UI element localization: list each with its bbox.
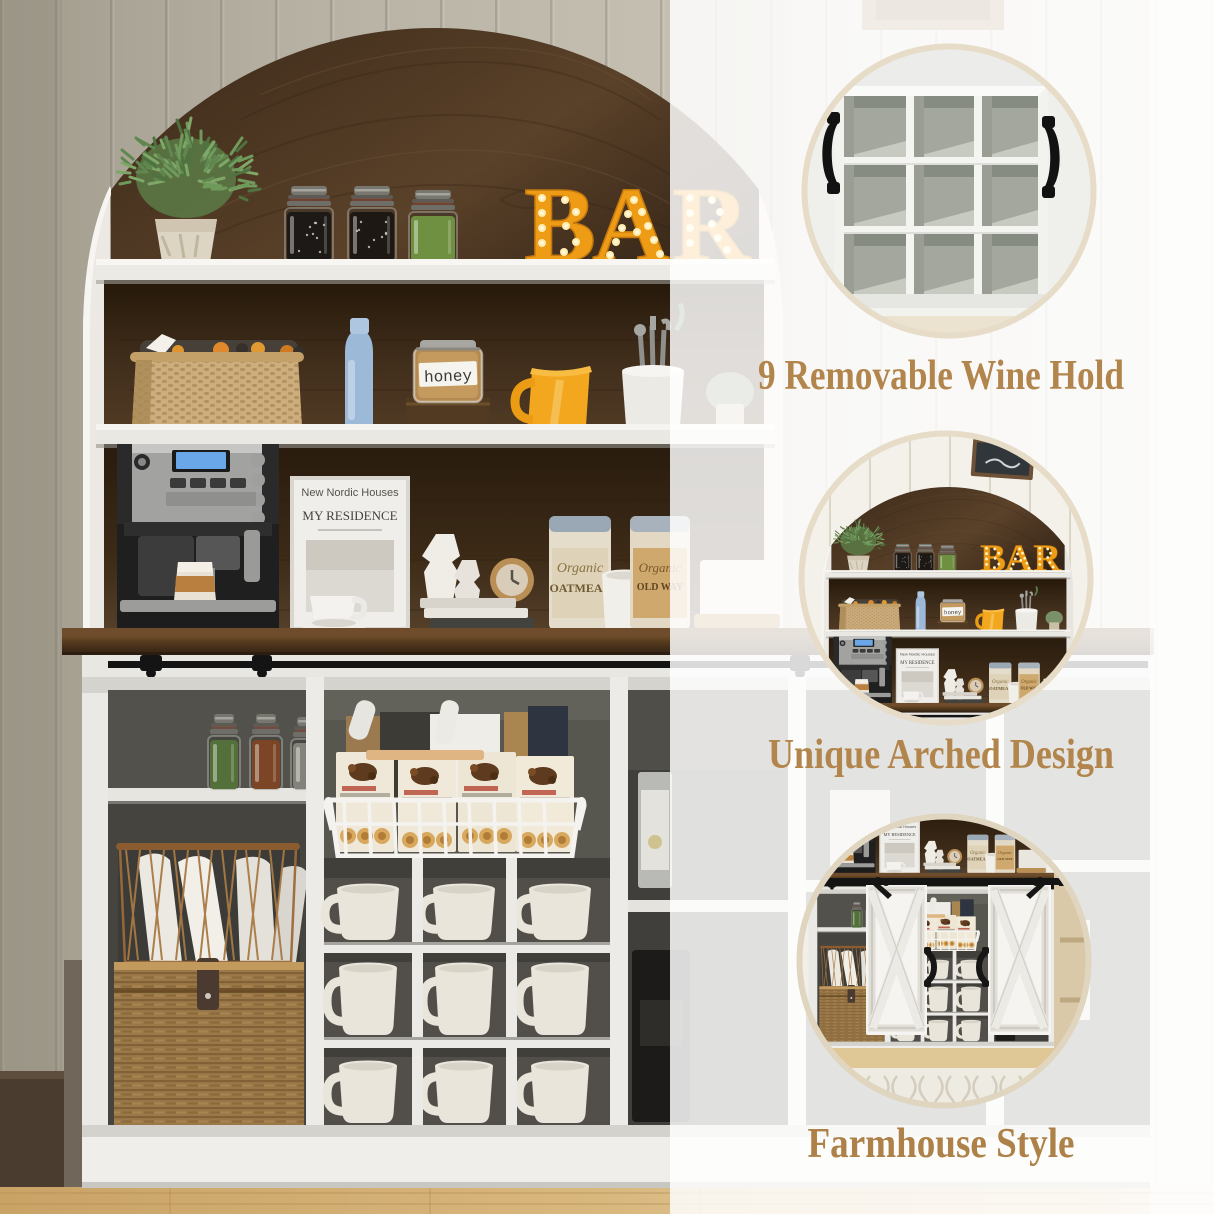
svg-text:OATMEAL: OATMEAL	[549, 581, 610, 595]
svg-text:Unique Arched Design: Unique Arched Design	[768, 732, 1114, 778]
svg-text:Farmhouse Style: Farmhouse Style	[808, 1121, 1075, 1167]
svg-text:honey: honey	[424, 367, 473, 387]
svg-text:Organic: Organic	[557, 561, 604, 576]
svg-text:New Nordic Houses: New Nordic Houses	[301, 487, 399, 499]
svg-text:9 Removable Wine Hold: 9 Removable Wine Hold	[758, 353, 1124, 399]
svg-text:MY RESIDENCE: MY RESIDENCE	[302, 508, 397, 523]
